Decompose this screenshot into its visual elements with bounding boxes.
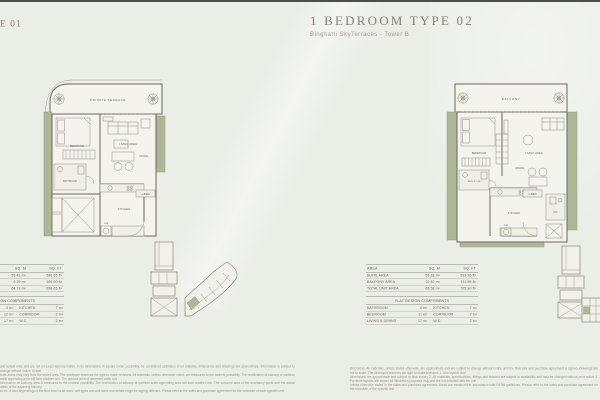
plant-icon: [458, 93, 468, 103]
component-name: KITCHEN: [13, 306, 50, 310]
key-plan-footprint-icon: [582, 298, 600, 322]
plant-icon: [148, 94, 158, 104]
balcony: BALCONY: [455, 84, 567, 112]
key-plan-right: [546, 244, 600, 324]
area-name: BALCONY AREA: [367, 280, 414, 284]
kitchen-label: KITCHEN: [508, 211, 520, 215]
planter-strip: [44, 112, 52, 236]
component-name: CORRIDOR: [13, 313, 50, 317]
component-value: 2 m²: [464, 319, 477, 323]
plant-icon: [554, 93, 564, 103]
bathroom: BATH ROOM: [459, 170, 489, 190]
disclaimer-line: to etc. It also depending on the floor l…: [0, 389, 295, 393]
area-sqft: 705.90 ft²: [443, 287, 477, 291]
component-name: CORRIDOR: [427, 313, 464, 317]
top-border-rule: [0, 0, 600, 2]
disclaimer-line: suite areas may vary from the stated are…: [0, 373, 295, 381]
area-table-type-01: SQ. M SQ. FT SUITE AREA 55.43 m² 596.65 …: [0, 264, 64, 325]
unit-tag-label: 1-BED: [528, 192, 537, 196]
component-value: 2 m²: [50, 313, 63, 317]
dining-label: DINING: [515, 166, 524, 170]
wc-room: WC: [546, 194, 565, 220]
key-plan-core-icon: [151, 242, 177, 316]
component-name: W.C.: [13, 319, 50, 323]
component-row: LIVING & DINING 17 m² W.C. 2 m²: [0, 318, 64, 325]
disclaimer-left: and actual units and are not an exact re…: [0, 365, 295, 393]
area-sqm: 64.72 m²: [0, 287, 29, 291]
area-name: TOTAL UNIT AREA: [367, 287, 414, 291]
area-name: SUITE AREA: [367, 274, 414, 278]
components-title: FLAT DESIGN COMPONENTS: [0, 297, 64, 306]
component-value: 17 m²: [0, 319, 13, 323]
area-sqft: 593.95 ft²: [443, 274, 477, 278]
area-sqm: 65.58 m²: [414, 287, 443, 291]
bathroom: BATHROOM: [54, 164, 86, 190]
component-value: 2 m²: [464, 313, 477, 317]
header-sqm: SQ. M: [0, 266, 29, 271]
table-row: TOTAL UNIT AREA 64.72 m² 696.65 ft²: [0, 286, 64, 293]
component-value: 12 m²: [0, 313, 13, 317]
area-sqft: 696.65 ft²: [29, 287, 63, 291]
unit-tag: 1-BED: [523, 190, 542, 197]
component-value: 4 m²: [0, 306, 13, 310]
component-value: 11 m²: [410, 313, 428, 317]
key-plan-core-icon: [558, 246, 584, 318]
disclaimer-line: and actual units and are not an exact re…: [0, 365, 295, 373]
wc-label: WC: [554, 211, 558, 214]
left-unit-title-fragment: E 01: [0, 18, 22, 30]
disclaimer-line: unless otherwise stated in the sales and…: [350, 383, 598, 391]
floor-plan-type-01: PRIVATE TERRACE BEDROOM: [40, 76, 172, 244]
brochure-page: E 01 1 BEDROOM TYPE 02 Binghatti SkyTerr…: [0, 0, 600, 400]
unit-tag: 1-BED: [136, 190, 155, 197]
washer-label: W/M: [504, 225, 509, 227]
living-label: LIVING AREA: [525, 151, 543, 155]
component-name: LIVING & DINING: [367, 319, 410, 323]
washer-label: W/M: [104, 223, 109, 225]
area-sqm: 55.18 m²: [414, 274, 443, 278]
disclaimer-line: information on balcony area is measured …: [0, 381, 295, 389]
component-row: LIVING & DINING 17 m² W.C. 2 m²: [366, 318, 478, 325]
dining-label: DINING: [139, 154, 148, 158]
highlighted-unit: [584, 307, 590, 314]
table-row: TOTAL UNIT AREA 65.58 m² 705.90 ft²: [366, 286, 478, 293]
component-name: BATHROOM: [367, 306, 410, 310]
component-value: 2 m²: [50, 319, 63, 323]
key-plan-footprint-icon: [185, 262, 237, 316]
area-sqft: 100.00 ft²: [29, 280, 63, 284]
bathroom-label: BATH ROOM: [468, 180, 481, 183]
bedroom-label: BEDROOM: [472, 151, 487, 155]
unit-tag-label: 1-BED: [141, 192, 150, 196]
component-name: KITCHEN: [427, 306, 464, 310]
area-sqm: 55.43 m²: [0, 274, 29, 278]
area-sqm: 9.29 m²: [0, 280, 29, 284]
area-table-type-02: AREA SQ. M SQ. FT SUITE AREA 55.18 m² 59…: [366, 264, 478, 325]
area-sqft: 596.65 ft²: [29, 274, 63, 278]
planter-strip: [567, 112, 577, 230]
table-header: SQ. M SQ. FT: [0, 264, 64, 273]
header-sqm: SQ. M: [414, 266, 443, 271]
component-value: 4 m²: [410, 306, 428, 310]
header-sqft: SQ. FT: [29, 266, 63, 271]
key-plan-left: [143, 240, 243, 320]
planter-strip: [156, 116, 165, 172]
disclaimer-line: dimensions are approximate and subject t…: [350, 375, 598, 383]
component-value: 17 m²: [410, 319, 428, 323]
area-sqm: 10.40 m²: [414, 280, 443, 284]
component-value: 7 m²: [50, 306, 63, 310]
bedroom-label: BEDROOM: [70, 144, 85, 148]
balcony-label: BALCONY: [502, 97, 520, 101]
table-header: AREA SQ. M SQ. FT: [366, 264, 478, 273]
area-sqft: 111.95 ft²: [443, 280, 477, 284]
right-unit-title: 1 BEDROOM TYPE 02: [310, 13, 474, 29]
header-sqft: SQ. FT: [443, 266, 477, 271]
private-terrace-label: PRIVATE TERRACE: [90, 98, 126, 102]
component-name: BEDROOM: [367, 313, 410, 317]
floor-plan-type-02: BALCONY BEDROOM: [442, 76, 582, 252]
component-value: 7 m²: [464, 306, 477, 310]
disclaimer-right: Disclaimer: All materials, unless stated…: [350, 367, 598, 391]
right-unit-subtitle: Binghatti SkyTerraces - Tower B: [310, 31, 409, 38]
header-area: AREA: [367, 266, 414, 271]
disclaimer-line: Disclaimer: All materials, unless stated…: [350, 367, 598, 375]
components-title: FLAT DESIGN COMPONENTS: [366, 297, 478, 306]
planter-strip: [447, 112, 457, 240]
kitchen-label: KITCHEN: [118, 207, 130, 211]
bathroom-label: BATHROOM: [63, 180, 77, 183]
component-name: W.C.: [427, 319, 464, 323]
living-label: LIVING AREA: [119, 142, 137, 146]
plant-icon: [54, 94, 64, 104]
